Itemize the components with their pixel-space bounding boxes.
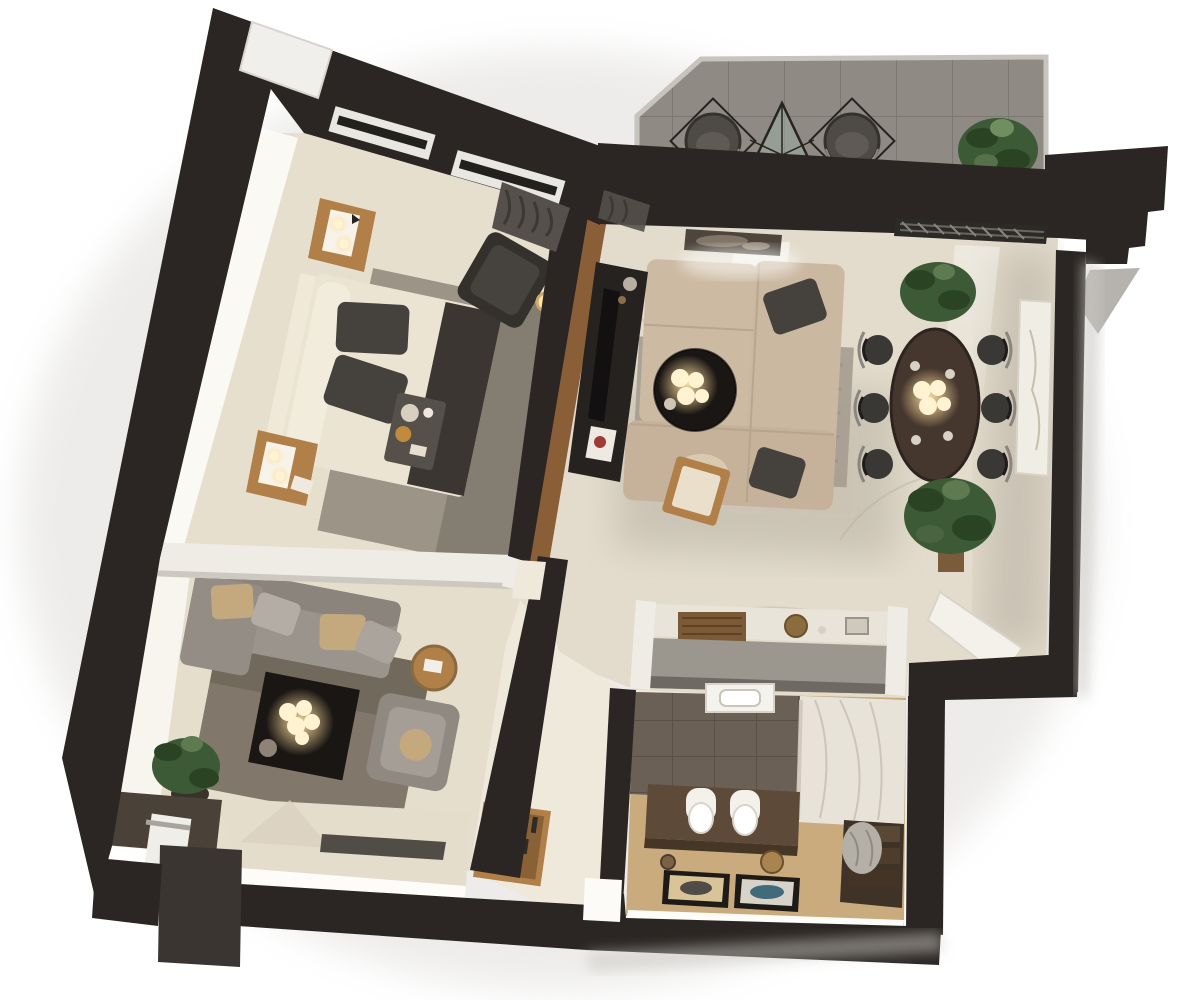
wall-northeast-steps [1045, 146, 1168, 264]
dining-set [855, 329, 1015, 482]
framed-art-fish [662, 870, 730, 908]
canvas-on-wall [1016, 300, 1052, 476]
coffee-table-black [654, 349, 736, 431]
sofa-pillow [211, 584, 255, 620]
lounge-coffee-table [248, 672, 360, 781]
console-decor [623, 277, 637, 291]
dining-plant-top [900, 262, 976, 322]
magazine-art [594, 436, 606, 448]
bathroom-sink [706, 684, 774, 712]
towel [842, 822, 882, 874]
decor-frame [846, 618, 868, 634]
bathroom [626, 692, 906, 934]
bidet [730, 790, 760, 835]
place-setting [910, 361, 920, 371]
wall-bath-east [906, 696, 945, 935]
door-gap-hall [583, 878, 622, 922]
floor-plan-svg [0, 0, 1200, 1000]
framed-art-blue [734, 874, 800, 912]
vanity-counter [645, 784, 800, 846]
place-setting [911, 435, 921, 445]
wall-southwest-link [92, 858, 162, 926]
basket [761, 851, 783, 873]
wall-pillar-southwest [158, 845, 242, 967]
place-setting [943, 431, 953, 441]
side-table [412, 646, 456, 690]
decor-plate [785, 615, 807, 637]
toilet [686, 788, 716, 833]
bed-pillow [335, 301, 410, 355]
console-decor [618, 296, 626, 304]
console-half-wall [630, 600, 908, 696]
place-setting [945, 369, 955, 379]
decor-candle [818, 626, 826, 634]
art-light-pool [680, 246, 800, 278]
floor-plan-render [0, 0, 1200, 1000]
door-gap-lounge [512, 560, 546, 600]
console-end-cap [885, 606, 908, 696]
decor [259, 739, 277, 757]
floor-drain [661, 855, 675, 869]
saucer [664, 398, 676, 410]
shower-marble [797, 696, 906, 828]
lounge-armchair [364, 691, 461, 793]
